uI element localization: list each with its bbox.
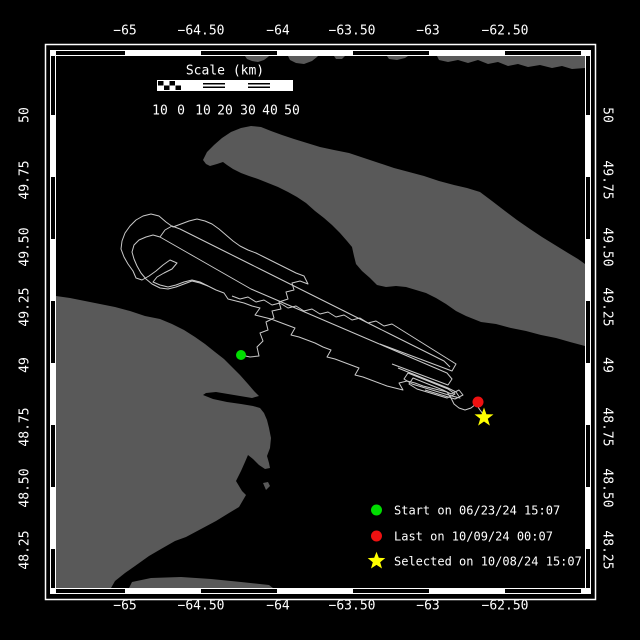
legend-label-start: Start on 06/23/24 15:07 <box>394 503 560 517</box>
axis-label-bottom-5: −62.50 <box>482 600 529 613</box>
zebra-segment-right <box>586 425 590 487</box>
map-window: −65 −64.50 −64 −63.50 −63 −62.50 −65 −64… <box>0 0 640 640</box>
axis-label-right-1: 49.75 <box>601 160 614 199</box>
selected-star-icon <box>366 551 387 572</box>
axis-label-top-4: −63 <box>416 25 439 38</box>
axis-label-left-7: 48.25 <box>19 530 32 569</box>
scalebar-bar <box>157 80 293 91</box>
axis-label-top-2: −64 <box>266 25 289 38</box>
scalebar-checker-segment <box>158 81 181 90</box>
scalebar-segment <box>248 81 270 90</box>
scalebar-tick-label: 40 <box>262 105 278 118</box>
scalebar-title: Scale (km) <box>186 64 264 79</box>
zebra-segment-top <box>353 51 429 55</box>
scalebar-segment <box>203 81 225 90</box>
zebra-segment-bottom <box>505 589 581 593</box>
axis-label-right-5: 48.75 <box>601 407 614 446</box>
zebra-segment-left <box>51 301 55 363</box>
legend-row-last: Last on 10/09/24 00:07 <box>366 526 553 547</box>
scalebar-tick-label: 50 <box>284 105 300 118</box>
last-dot-icon <box>366 526 387 547</box>
zebra-segment-bottom <box>201 589 277 593</box>
zebra-segment-left <box>51 549 55 588</box>
axis-label-right-3: 49.25 <box>601 287 614 326</box>
zebra-segment-right <box>586 301 590 363</box>
zebra-segment-top <box>56 51 125 55</box>
axis-label-left-5: 48.75 <box>19 407 32 446</box>
legend-label-last: Last on 10/09/24 00:07 <box>394 529 553 543</box>
zebra-segment-top <box>505 51 581 55</box>
zebra-segment-bottom <box>353 589 429 593</box>
start-marker <box>236 350 246 360</box>
scalebar-segment <box>270 81 292 90</box>
scalebar-tick-label: 0 <box>177 105 185 118</box>
axis-label-left-2: 49.50 <box>19 227 32 266</box>
axis-label-top-3: −63.50 <box>329 25 376 38</box>
axis-label-right-6: 48.50 <box>601 468 614 507</box>
scalebar-tick-label: 30 <box>240 105 256 118</box>
last-marker <box>473 397 484 408</box>
scalebar-tick-label: 10 <box>195 105 211 118</box>
zebra-segment-right <box>586 177 590 239</box>
axis-label-right-2: 49.50 <box>601 227 614 266</box>
axis-label-left-1: 49.75 <box>19 160 32 199</box>
axis-label-top-0: −65 <box>113 25 136 38</box>
axis-label-left-3: 49.25 <box>19 287 32 326</box>
axis-label-left-0: 50 <box>19 107 32 123</box>
axis-label-top-5: −62.50 <box>482 25 529 38</box>
axis-label-left-6: 48.50 <box>19 468 32 507</box>
zebra-segment-right <box>586 549 590 588</box>
scalebar-segment <box>181 81 203 90</box>
axis-label-left-4: 49 <box>19 357 32 373</box>
scalebar-segment <box>225 81 247 90</box>
zebra-segment-left <box>51 425 55 487</box>
zebra-segment-bottom <box>56 589 125 593</box>
legend-row-start: Start on 06/23/24 15:07 <box>366 500 560 521</box>
scalebar-tick-label: 10 <box>152 105 168 118</box>
zebra-segment-top <box>201 51 277 55</box>
star-glyph <box>368 552 386 569</box>
axis-label-bottom-3: −63.50 <box>329 600 376 613</box>
scalebar-tick-label: 20 <box>217 105 233 118</box>
legend-row-selected: Selected on 10/08/24 15:07 <box>366 551 582 572</box>
start-dot-icon <box>366 500 387 521</box>
axis-label-bottom-1: −64.50 <box>178 600 225 613</box>
legend-label-selected: Selected on 10/08/24 15:07 <box>394 554 582 568</box>
axis-label-bottom-0: −65 <box>113 600 136 613</box>
axis-label-bottom-4: −63 <box>416 600 439 613</box>
axis-label-right-4: 49 <box>601 357 614 373</box>
zebra-segment-left <box>51 56 55 115</box>
zebra-segment-left <box>51 177 55 239</box>
axis-label-right-7: 48.25 <box>601 530 614 569</box>
zebra-segment-right <box>586 56 590 115</box>
axis-label-right-0: 50 <box>601 107 614 123</box>
axis-label-bottom-2: −64 <box>266 600 289 613</box>
axis-label-top-1: −64.50 <box>178 25 225 38</box>
